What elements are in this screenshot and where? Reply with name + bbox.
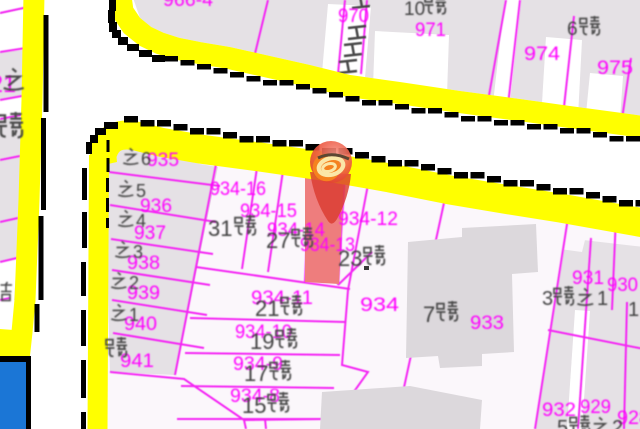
svg-text:2: 2: [612, 417, 623, 429]
svg-text:27: 27: [266, 228, 290, 253]
svg-text:21: 21: [0, 71, 16, 98]
svg-text:3: 3: [133, 242, 143, 262]
svg-text:5: 5: [557, 417, 568, 429]
svg-text:23: 23: [338, 246, 362, 271]
svg-text:975: 975: [597, 58, 633, 79]
svg-text:10: 10: [404, 0, 425, 20]
svg-text:934-12: 934-12: [338, 209, 398, 230]
svg-text:938: 938: [127, 253, 160, 274]
svg-text:971: 971: [415, 20, 446, 41]
svg-text:935: 935: [147, 150, 179, 171]
svg-text:19: 19: [250, 329, 274, 354]
svg-text:934-15: 934-15: [240, 201, 297, 222]
svg-text:3: 3: [542, 288, 553, 310]
svg-text:1: 1: [628, 299, 639, 321]
svg-text:7: 7: [423, 302, 435, 327]
svg-text:966-4: 966-4: [163, 0, 213, 11]
svg-text:934-16: 934-16: [210, 179, 266, 200]
svg-text:1: 1: [597, 288, 608, 310]
svg-text:17: 17: [244, 361, 268, 386]
svg-text:6: 6: [567, 19, 578, 40]
svg-text:2: 2: [129, 273, 139, 293]
svg-text:931: 931: [572, 268, 604, 289]
svg-text:4: 4: [136, 211, 146, 231]
svg-text:6: 6: [141, 149, 151, 169]
svg-text:974: 974: [524, 44, 560, 65]
svg-text:970: 970: [338, 6, 369, 27]
svg-text:934: 934: [360, 295, 400, 316]
svg-text:941: 941: [120, 351, 154, 372]
svg-text:933: 933: [470, 313, 504, 334]
svg-text:929: 929: [580, 397, 611, 418]
svg-text:31: 31: [208, 216, 232, 241]
svg-text:15: 15: [242, 393, 266, 418]
svg-text:21: 21: [255, 296, 279, 321]
svg-text:1: 1: [129, 305, 139, 325]
svg-text:930: 930: [607, 275, 638, 296]
svg-text:5: 5: [136, 181, 146, 201]
